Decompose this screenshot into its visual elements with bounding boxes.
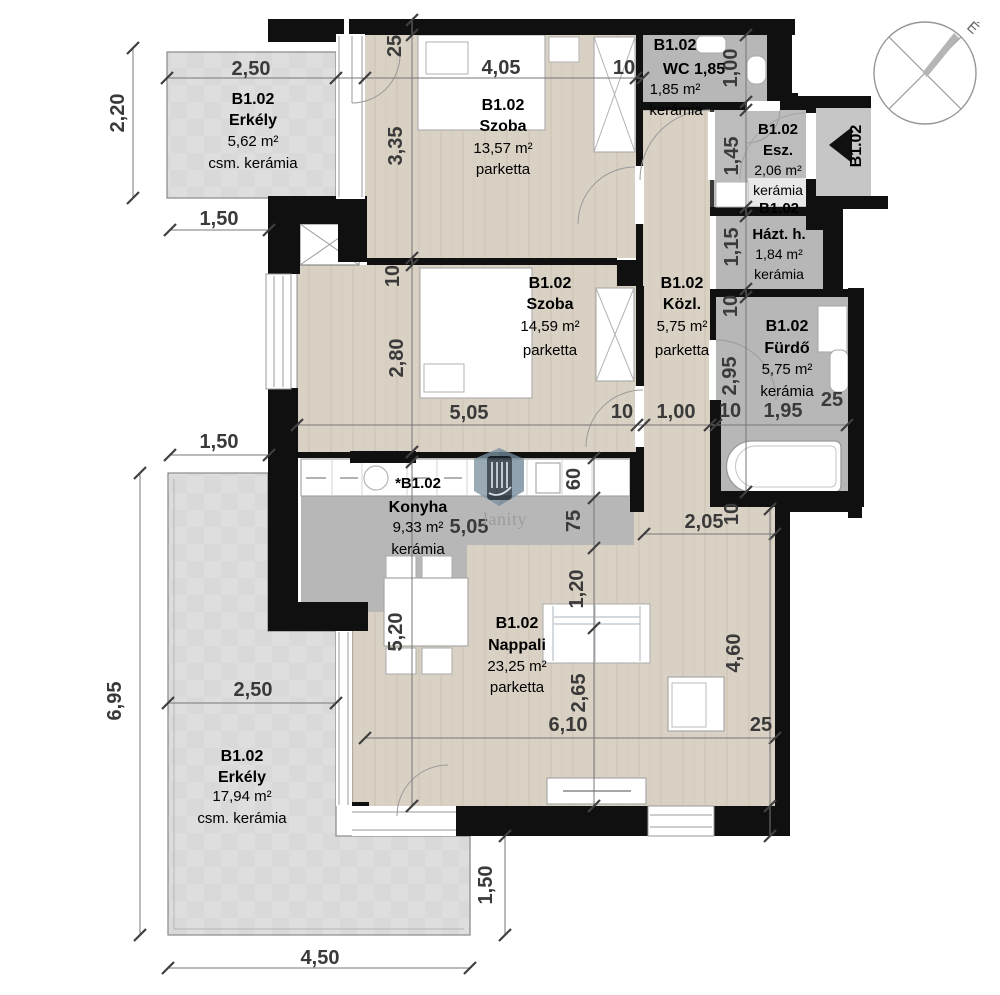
- svg-text:10: 10: [613, 57, 635, 79]
- svg-text:9,33 m²: 9,33 m²: [393, 519, 444, 536]
- svg-text:2,50: 2,50: [234, 679, 273, 701]
- svg-text:B1.02: B1.02: [654, 37, 697, 54]
- svg-text:2,05: 2,05: [685, 511, 724, 533]
- svg-text:parketta: parketta: [490, 679, 545, 696]
- svg-text:parketta: parketta: [655, 342, 710, 359]
- svg-text:B1.02: B1.02: [482, 97, 525, 114]
- svg-text:Esz.: Esz.: [763, 142, 793, 159]
- svg-text:Házt. h.: Házt. h.: [752, 226, 805, 243]
- svg-text:csm. kerámia: csm. kerámia: [197, 810, 287, 827]
- svg-text:kerámia: kerámia: [753, 182, 803, 198]
- svg-text:1,15: 1,15: [721, 228, 743, 267]
- svg-text:10: 10: [720, 295, 742, 317]
- svg-text:parketta: parketta: [523, 342, 578, 359]
- svg-text:B1.02: B1.02: [766, 318, 809, 335]
- svg-text:1,85 m²: 1,85 m²: [650, 81, 701, 98]
- svg-text:10: 10: [721, 503, 743, 525]
- svg-text:Konyha: Konyha: [389, 499, 448, 516]
- svg-text:2,80: 2,80: [386, 339, 408, 378]
- svg-text:2,65: 2,65: [568, 674, 590, 713]
- svg-text:*B1.02: *B1.02: [395, 475, 441, 492]
- svg-text:3,35: 3,35: [385, 127, 407, 166]
- svg-text:25: 25: [821, 389, 843, 411]
- svg-text:B1.02: B1.02: [759, 200, 799, 217]
- svg-text:Erkély: Erkély: [218, 769, 266, 786]
- svg-text:WC 1,85: WC 1,85: [663, 61, 725, 78]
- svg-text:6,10: 6,10: [549, 714, 588, 736]
- svg-text:2,06 m²: 2,06 m²: [754, 162, 802, 178]
- svg-text:5,05: 5,05: [450, 402, 489, 424]
- svg-text:lanity: lanity: [483, 509, 527, 529]
- svg-text:5,20: 5,20: [385, 613, 407, 652]
- svg-text:1,00: 1,00: [657, 401, 696, 423]
- svg-text:17,94 m²: 17,94 m²: [212, 788, 271, 805]
- svg-text:É: É: [963, 18, 982, 37]
- svg-text:B1.02: B1.02: [758, 121, 798, 138]
- svg-text:10: 10: [611, 401, 633, 423]
- svg-text:B1.02: B1.02: [848, 125, 865, 168]
- svg-text:10: 10: [382, 265, 404, 287]
- svg-text:1,20: 1,20: [566, 570, 588, 609]
- svg-text:B1.02: B1.02: [529, 275, 572, 292]
- svg-text:6,95: 6,95: [104, 682, 126, 721]
- svg-text:25: 25: [750, 714, 772, 736]
- svg-text:Szoba: Szoba: [526, 296, 573, 313]
- svg-text:Erkély: Erkély: [229, 112, 277, 129]
- svg-text:csm. kerámia: csm. kerámia: [208, 155, 298, 172]
- svg-text:1,50: 1,50: [475, 866, 497, 905]
- svg-text:B1.02: B1.02: [232, 91, 275, 108]
- svg-text:Nappali: Nappali: [488, 637, 546, 654]
- svg-text:1,50: 1,50: [200, 208, 239, 230]
- svg-text:B1.02: B1.02: [661, 275, 704, 292]
- svg-text:4,50: 4,50: [301, 947, 340, 969]
- svg-text:kerámia: kerámia: [760, 383, 814, 400]
- svg-text:Közl.: Közl.: [663, 296, 701, 313]
- svg-text:Fürdő: Fürdő: [764, 340, 810, 357]
- svg-text:13,57 m²: 13,57 m²: [473, 140, 532, 157]
- svg-text:1,84 m²: 1,84 m²: [755, 246, 803, 262]
- svg-text:1,50: 1,50: [200, 431, 239, 453]
- svg-text:23,25 m²: 23,25 m²: [487, 658, 546, 675]
- svg-text:25: 25: [384, 35, 406, 57]
- svg-text:4,05: 4,05: [482, 57, 521, 79]
- svg-text:5,75 m²: 5,75 m²: [762, 361, 813, 378]
- svg-text:kerámia: kerámia: [754, 266, 804, 282]
- svg-text:1,45: 1,45: [721, 137, 743, 176]
- svg-text:Szoba: Szoba: [479, 118, 526, 135]
- svg-text:kerámia: kerámia: [649, 102, 703, 119]
- svg-text:10: 10: [719, 400, 741, 422]
- svg-text:4,60: 4,60: [723, 634, 745, 673]
- svg-text:parketta: parketta: [476, 161, 531, 178]
- svg-text:2,50: 2,50: [232, 58, 271, 80]
- svg-text:2,20: 2,20: [107, 94, 129, 133]
- svg-text:75: 75: [563, 510, 585, 532]
- svg-text:B1.02: B1.02: [496, 615, 539, 632]
- svg-text:1,95: 1,95: [764, 400, 803, 422]
- svg-text:5,75 m²: 5,75 m²: [657, 318, 708, 335]
- svg-text:5,62 m²: 5,62 m²: [228, 133, 279, 150]
- svg-text:kerámia: kerámia: [391, 541, 445, 558]
- svg-text:2,95: 2,95: [719, 357, 741, 396]
- svg-text:14,59 m²: 14,59 m²: [520, 318, 579, 335]
- svg-text:B1.02: B1.02: [221, 748, 264, 765]
- svg-text:60: 60: [563, 468, 585, 490]
